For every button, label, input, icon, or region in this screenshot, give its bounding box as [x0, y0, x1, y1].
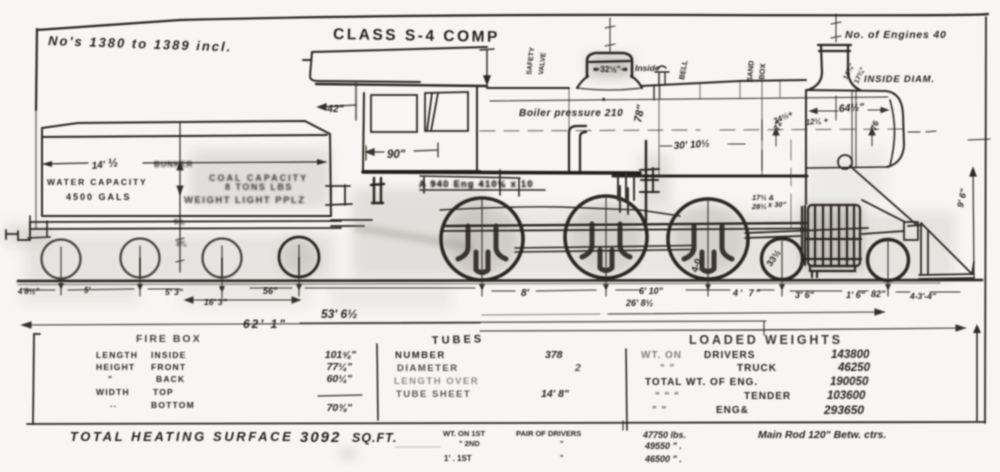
svg-text:BACK: BACK	[156, 374, 185, 384]
svg-text:DIAMETER: DIAMETER	[397, 363, 459, 374]
svg-text:90": 90"	[387, 149, 406, 161]
svg-text:3¾: 3¾	[176, 240, 187, 248]
svg-text:": "	[560, 439, 564, 448]
svg-text:ENG&: ENG&	[716, 405, 749, 416]
svg-text:HEIGHT: HEIGHT	[96, 362, 135, 372]
svg-text:SQ.FT.: SQ.FT.	[352, 431, 397, 445]
svg-text:5⅞: 5⅞	[174, 219, 185, 226]
svg-text:A 940 Eng 410½ x 10: A 940 Eng 410½ x 10	[419, 179, 534, 189]
svg-text:103600: 103600	[827, 390, 866, 402]
svg-text:x 30": x 30"	[767, 200, 787, 209]
svg-text:56": 56"	[263, 286, 278, 296]
svg-text:4' 7": 4' 7"	[732, 288, 762, 298]
svg-text:14' 8": 14' 8"	[541, 388, 570, 400]
svg-text:" ": " "	[652, 405, 667, 416]
svg-text:46500 " .: 46500 " .	[644, 454, 682, 464]
svg-text:47750 lbs.: 47750 lbs.	[642, 430, 686, 440]
svg-text:302: 302	[340, 449, 357, 460]
svg-text:42": 42"	[326, 103, 345, 115]
svg-text:26' 8½: 26' 8½	[625, 298, 654, 308]
svg-text:TENDER: TENDER	[744, 391, 791, 402]
svg-text:TOTAL HEATING SURFACE: TOTAL HEATING SURFACE	[70, 429, 293, 444]
svg-text:46250: 46250	[837, 362, 871, 374]
svg-text:3' 6": 3' 6"	[795, 290, 815, 300]
svg-text:↞32½"↠: ↞32½"↠	[593, 64, 629, 74]
svg-text:FIRE BOX: FIRE BOX	[136, 333, 202, 345]
svg-text:16' 3": 16' 3"	[204, 297, 228, 307]
svg-text:SAND: SAND	[745, 60, 756, 83]
svg-text:53' 6½: 53' 6½	[321, 307, 357, 321]
svg-text:TOTAL WT. OF ENG.: TOTAL WT. OF ENG.	[645, 377, 758, 388]
svg-text:INSIDE DIAM.: INSIDE DIAM.	[864, 74, 935, 85]
svg-text:BELL: BELL	[677, 59, 689, 80]
svg-text:12¼ +: 12¼ +	[805, 116, 829, 127]
svg-text:LOADED WEIGHTS: LOADED WEIGHTS	[689, 333, 843, 347]
svg-text:WEIGHT LIGHT PPLZ: WEIGHT LIGHT PPLZ	[184, 195, 306, 206]
svg-text:14' ½: 14' ½	[91, 155, 119, 172]
svg-text:LENGTH: LENGTH	[96, 350, 138, 360]
svg-text:BOTTOM: BOTTOM	[151, 400, 195, 410]
svg-text:4500 GALS: 4500 GALS	[66, 192, 132, 202]
svg-text:WT. ON 1ST: WT. ON 1ST	[443, 429, 486, 438]
svg-text:" ": " "	[660, 363, 675, 374]
svg-text:3092: 3092	[300, 429, 341, 446]
svg-text:8': 8'	[521, 288, 530, 299]
svg-text:" 2ND: " 2ND	[459, 439, 480, 448]
svg-text:70⅜": 70⅜"	[327, 402, 353, 414]
svg-text:76: 76	[868, 119, 881, 131]
svg-text:5': 5'	[84, 286, 91, 295]
svg-text:BUNKER: BUNKER	[154, 160, 193, 169]
svg-text:SAFETY: SAFETY	[526, 47, 536, 76]
svg-text:6' 10": 6' 10"	[639, 286, 664, 296]
svg-text:378: 378	[545, 349, 563, 361]
svg-text:VALVE: VALVE	[538, 52, 548, 75]
svg-text:77¼": 77¼"	[327, 361, 353, 373]
svg-text:WATER CAPACITY: WATER CAPACITY	[47, 177, 147, 187]
svg-text:INSIDE: INSIDE	[151, 350, 187, 360]
svg-text:14¾": 14¾"	[842, 62, 856, 81]
svg-text:1' 6": 1' 6"	[846, 290, 866, 300]
svg-text:LENGTH OVER: LENGTH OVER	[394, 376, 479, 387]
svg-text:BOX: BOX	[757, 63, 767, 80]
svg-text:FRONT: FRONT	[151, 362, 186, 372]
svg-text:28½: 28½	[751, 202, 767, 211]
svg-text:293650: 293650	[823, 403, 864, 417]
svg-text:82": 82"	[871, 289, 886, 299]
svg-text:30' 10½: 30' 10½	[673, 139, 709, 152]
svg-text:78": 78"	[632, 103, 648, 123]
svg-text:Inside: Inside	[635, 63, 660, 73]
svg-text:TUBE SHEET: TUBE SHEET	[396, 389, 471, 400]
svg-text:*: *	[602, 96, 606, 106]
svg-text:WIDTH: WIDTH	[96, 387, 130, 397]
svg-text:Main Rod 120" Betw. ctrs.: Main Rod 120" Betw. ctrs.	[758, 429, 886, 441]
svg-text:..: ..	[110, 399, 117, 409]
svg-text:NUMBER: NUMBER	[395, 350, 446, 361]
svg-text:64½": 64½"	[838, 101, 865, 115]
svg-text:143800: 143800	[831, 349, 870, 361]
svg-text:TRUCK: TRUCK	[737, 363, 777, 374]
svg-text:9' 6": 9' 6"	[955, 187, 969, 208]
svg-text:": "	[560, 453, 564, 462]
svg-text:1' . 1ST: 1' . 1ST	[444, 454, 472, 463]
svg-text:49550 " .: 49550 " .	[644, 441, 682, 451]
svg-text:4-3'-4": 4-3'-4"	[909, 291, 937, 301]
svg-text:TOP: TOP	[153, 387, 174, 397]
svg-text:2: 2	[574, 362, 581, 374]
svg-text:PAIR OF DRIVERS: PAIR OF DRIVERS	[516, 429, 581, 438]
svg-text:190050: 190050	[830, 376, 869, 388]
svg-text:101⅝": 101⅝"	[325, 349, 357, 361]
svg-text:TUBES: TUBES	[432, 333, 485, 347]
svg-text:60¼": 60¼"	[327, 373, 353, 385]
svg-text:DRIVERS: DRIVERS	[704, 350, 755, 361]
svg-text:8 TONS LBS: 8 TONS LBS	[225, 182, 293, 192]
svg-text:" " ": " " "	[655, 391, 680, 402]
svg-text:WT. ON: WT. ON	[641, 350, 682, 361]
svg-text:No. of Engines 40: No. of Engines 40	[845, 29, 947, 41]
svg-text:No's 1380 to 1389 incl.: No's 1380 to 1389 incl.	[48, 33, 233, 54]
svg-text:CLASS S-4 COMP: CLASS S-4 COMP	[333, 26, 500, 46]
svg-text:62' 1": 62' 1"	[243, 317, 287, 331]
svg-text:Boiler pressure 210: Boiler pressure 210	[519, 108, 623, 119]
svg-text:": "	[108, 374, 113, 384]
svg-text:4'8½": 4'8½"	[17, 287, 39, 296]
svg-text:5' 3": 5' 3"	[165, 287, 184, 297]
